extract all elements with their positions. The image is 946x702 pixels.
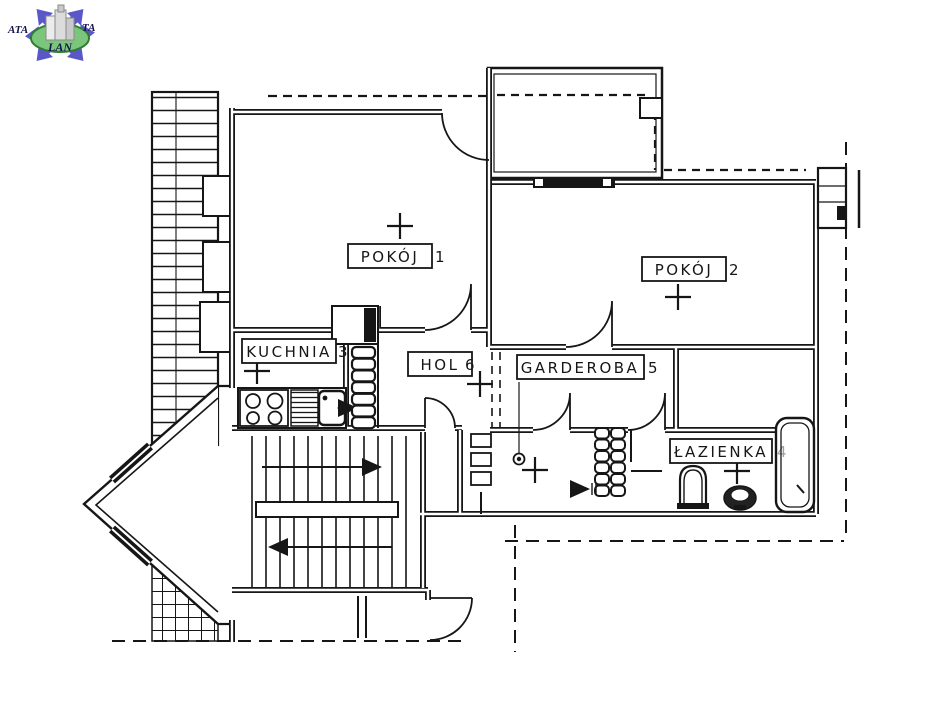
faucet-dot (323, 396, 328, 401)
band-window-box (200, 302, 234, 352)
room-label-pokoj-1: POKÓJ 1 (348, 244, 445, 268)
room-number: 5 (648, 359, 658, 377)
svg-text:POKÓJ: POKÓJ (655, 260, 714, 279)
door-arc-terrace (442, 113, 489, 160)
radiator-corridor (595, 428, 625, 496)
kitchen-fixtures (238, 388, 356, 428)
logo-text-left: ATA (7, 24, 28, 36)
bathtub (776, 418, 814, 512)
drainboard (291, 390, 318, 426)
room-number: 3 (338, 343, 348, 361)
band-window-box (203, 176, 233, 216)
room-number: 4 (777, 443, 787, 461)
door-arc-pokoj1 (425, 284, 471, 330)
room-label-lazienka: ŁAZIENKA 4 (670, 439, 787, 463)
floorplan-page: POKÓJ 1 POKÓJ 2 KUCHNIA 3 HOL 6 GARDEROB… (0, 0, 946, 702)
svg-text:KUCHNIA: KUCHNIA (246, 343, 332, 361)
door-arc-garderoba-right (628, 393, 665, 430)
room-number: 2 (729, 261, 739, 279)
window-right (818, 168, 846, 228)
door-arc-hol (425, 398, 455, 428)
radiator-hall (352, 347, 375, 428)
band-window-box (203, 242, 233, 292)
room-label-pokoj-2: POKÓJ 2 (642, 257, 739, 281)
floorplan-drawing: POKÓJ 1 POKÓJ 2 KUCHNIA 3 HOL 6 GARDEROB… (0, 0, 946, 702)
svg-text:GARDEROBA: GARDEROBA (521, 359, 640, 377)
room-number: 6 (465, 356, 475, 374)
svg-text:ŁAZIENKA: ŁAZIENKA (673, 443, 768, 461)
room-label-hol: HOL 6 (408, 352, 475, 376)
washbasin (724, 486, 756, 510)
interior-partitions (358, 170, 859, 638)
staircase (252, 436, 406, 588)
room-label-kuchnia: KUCHNIA 3 (242, 339, 348, 363)
svg-text:POKÓJ: POKÓJ (361, 247, 420, 266)
logo-buildings (46, 5, 74, 40)
door-arc-pokoj2 (566, 301, 612, 347)
door-arc-garderoba-left (533, 393, 570, 430)
logo: ATA TA LAN (7, 3, 96, 68)
logo-text-bottom: LAN (47, 40, 73, 54)
room-number: 1 (435, 248, 445, 266)
logo-text-right: TA (82, 22, 95, 34)
window-pokoj2-top (533, 177, 615, 188)
room-label-garderoba: GARDEROBA 5 (517, 355, 658, 379)
svg-text:HOL: HOL (421, 356, 460, 374)
duct-boxes (471, 434, 491, 485)
terrace (488, 68, 662, 178)
stair-handrail (256, 502, 398, 517)
door-arc-landing (430, 598, 472, 640)
